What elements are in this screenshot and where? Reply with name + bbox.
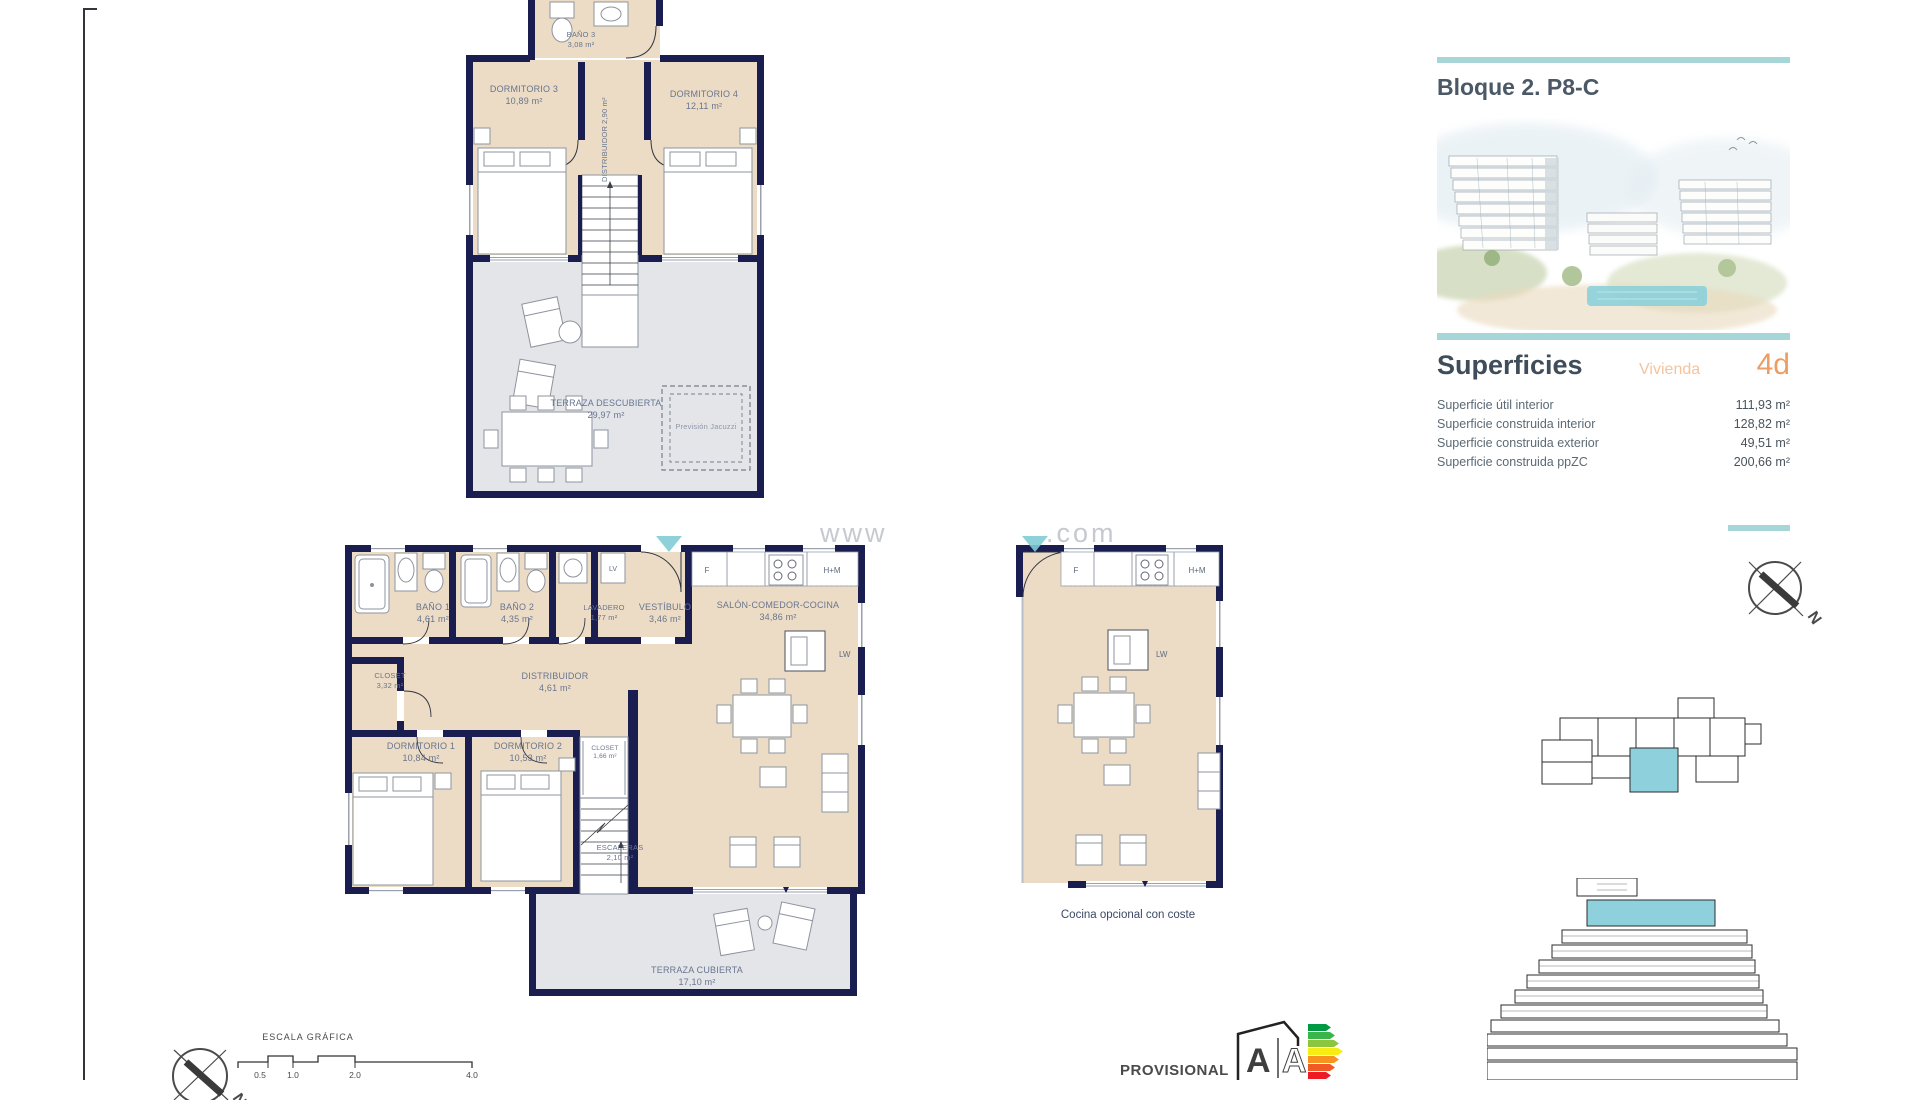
- teal-dash: [1728, 525, 1790, 531]
- scale-tick: 2.0: [349, 1070, 361, 1080]
- energy-letter-a-solid: A: [1246, 1042, 1271, 1080]
- building-elevation-sketch: [1487, 878, 1799, 1080]
- oven-micro-tag: H+M: [823, 566, 840, 575]
- lw-tag-optional: LW: [1156, 650, 1168, 659]
- highlighted-unit: [1630, 748, 1678, 792]
- room-label-dormitorio4: DORMITORIO 4 12,11 m²: [654, 89, 754, 112]
- lower-floor-plan: F H+M LV LW BAÑO 1 4,61 m² BAÑO 2 4,35 m…: [345, 545, 865, 1010]
- compass-n-label: N: [1804, 609, 1825, 628]
- surface-row: Superficie construida exterior 49,51 m²: [1437, 436, 1790, 450]
- room-label-vestibulo: VESTÍBULO 3,46 m²: [629, 602, 701, 625]
- watermark-www: www: [820, 518, 888, 549]
- oven-micro-tag-optional: H+M: [1188, 566, 1205, 575]
- room-label-dormitorio3: DORMITORIO 3 10,89 m²: [474, 84, 574, 107]
- room-label-distribuidor-upper: DISTRIBUIDOR 2,90 m²: [600, 82, 610, 182]
- compass-n-label: N: [229, 1091, 250, 1100]
- surface-row: Superficie construida interior 128,82 m²: [1437, 417, 1790, 431]
- room-label-bano3: BAÑO 3 3,08 m²: [546, 30, 616, 50]
- building-render-image: [1437, 118, 1790, 330]
- surface-row: Superficie útil interior 111,93 m²: [1437, 398, 1790, 412]
- vivienda-label: Vivienda: [1639, 361, 1700, 379]
- page-border-top: [83, 8, 97, 10]
- room-label-closet1: CLOSET 3,32 m²: [354, 671, 426, 691]
- room-label-bano1: BAÑO 1 4,61 m²: [395, 602, 471, 625]
- scale-tick: 1.0: [287, 1070, 299, 1080]
- room-label-escaleras: ESCALERAS 2,10 m²: [582, 843, 658, 863]
- teal-rule-top: [1437, 57, 1790, 63]
- floor-plan-sheet: { "right_panel": { "block_title": "Bloqu…: [0, 0, 1920, 1080]
- room-label-distribuidor-lower: DISTRIBUIDOR 4,61 m²: [505, 671, 605, 694]
- room-label-bano2: BAÑO 2 4,35 m²: [479, 602, 555, 625]
- room-label-closet2: CLOSET 1,66 m²: [577, 745, 633, 762]
- superficies-header: Superficies Vivienda 4d: [1437, 348, 1790, 382]
- fridge-tag-optional: F: [1074, 566, 1079, 575]
- provisional-label: PROVISIONAL: [1120, 1062, 1229, 1079]
- compass-icon-bottom: N: [158, 1040, 258, 1100]
- energy-scale-bars: [1308, 1024, 1343, 1079]
- compass-icon: N: [1735, 550, 1830, 635]
- room-label-salon: SALÓN-COMEDOR-COCINA 34,86 m²: [708, 600, 848, 623]
- graphic-scale-bar: ESCALA GRÁFICA 0.5 1.0 2.0 4.0: [230, 1028, 500, 1080]
- vivienda-code: 4d: [1757, 348, 1790, 382]
- lv-tag: LV: [609, 566, 617, 573]
- watermark-logo-icon: [1022, 536, 1048, 552]
- room-label-dormitorio2: DORMITORIO 2 10,53 m²: [469, 741, 587, 764]
- watermark-logo-icon: [656, 536, 682, 552]
- room-label-dormitorio1: DORMITORIO 1 10,84 m²: [361, 741, 481, 764]
- teal-rule-superficies: [1437, 333, 1790, 340]
- surface-row: Superficie construida ppZC 200,66 m²: [1437, 455, 1790, 469]
- superficies-title: Superficies: [1437, 350, 1583, 381]
- lw-tag: LW: [839, 650, 851, 659]
- optional-kitchen-caption: Cocina opcional con coste: [1028, 909, 1228, 921]
- block-title: Bloque 2. P8-C: [1437, 74, 1599, 101]
- room-label-terraza-descubierta: TERRAZA DESCUBIERTA 29,97 m²: [541, 398, 671, 421]
- upper-floor-plan: BAÑO 3 3,08 m² DORMITORIO 3 10,89 m² DOR…: [466, 0, 764, 505]
- scale-tick: 4.0: [466, 1070, 478, 1080]
- room-label-prevision-jacuzzi: Previsión Jacuzzi: [664, 422, 748, 432]
- highlighted-floor: [1587, 900, 1715, 926]
- fridge-tag: F: [705, 566, 710, 575]
- scale-bar-title: ESCALA GRÁFICA: [262, 1032, 354, 1042]
- optional-kitchen-plan-drawing: F H+M LW: [1016, 545, 1240, 905]
- page-border-vertical: [83, 8, 85, 1080]
- watermark-com: .com: [1046, 518, 1117, 549]
- optional-kitchen-plan: F H+M LW Cocina opcional con coste: [1016, 545, 1240, 940]
- energy-letter-a-outline: A: [1282, 1042, 1307, 1080]
- unit-location-keyplan: [1540, 688, 1775, 848]
- room-label-terraza-cubierta: TERRAZA CUBIERTA 17,10 m²: [627, 965, 767, 988]
- energy-certificate-icon: A A: [1226, 1020, 1346, 1082]
